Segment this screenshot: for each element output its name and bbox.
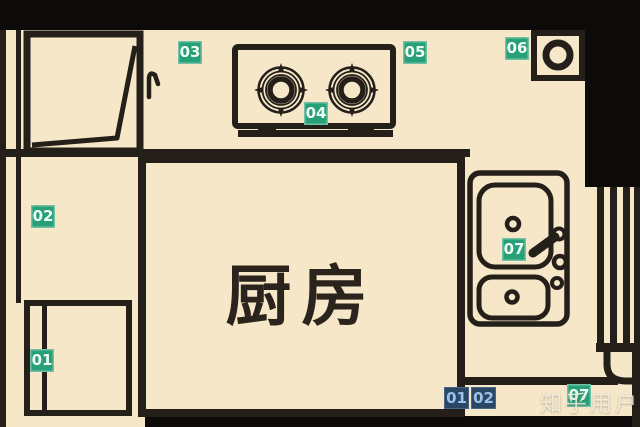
- kitchen-floor-plan: 厨房 03 05 06 04 07 02 01 01 02 07 知乎用户: [0, 0, 640, 427]
- burner-left: [254, 63, 308, 117]
- flue-hole: [534, 33, 582, 78]
- window-sill-bar: [596, 343, 640, 352]
- zhihu-watermark: 知乎用户: [540, 386, 640, 418]
- burner-right: [325, 63, 379, 117]
- marker-07: 07: [502, 238, 526, 261]
- floor-plan-linework: [0, 0, 640, 427]
- drain-small: [507, 292, 518, 303]
- left-wall-inner-line: [16, 30, 21, 303]
- marker-06: 06: [505, 37, 529, 60]
- sink-basin-small: [479, 277, 548, 318]
- room-title: 厨房: [138, 243, 465, 339]
- left-wall-outer-line: [0, 30, 6, 427]
- right-wall-upper: [585, 0, 640, 187]
- top-wall: [0, 0, 640, 30]
- marker-05: 05: [403, 41, 427, 64]
- marker-02-blue: 02: [471, 387, 496, 409]
- marker-01-blue: 01: [444, 387, 469, 409]
- lower-counter-edge: [458, 377, 618, 385]
- cabinet-with-door-swing: [27, 34, 158, 151]
- marker-03: 03: [178, 41, 202, 64]
- drain-large: [507, 218, 519, 230]
- marker-04: 04: [304, 102, 328, 125]
- window-right: [585, 187, 640, 345]
- marker-01: 01: [30, 349, 54, 372]
- marker-02: 02: [31, 205, 55, 228]
